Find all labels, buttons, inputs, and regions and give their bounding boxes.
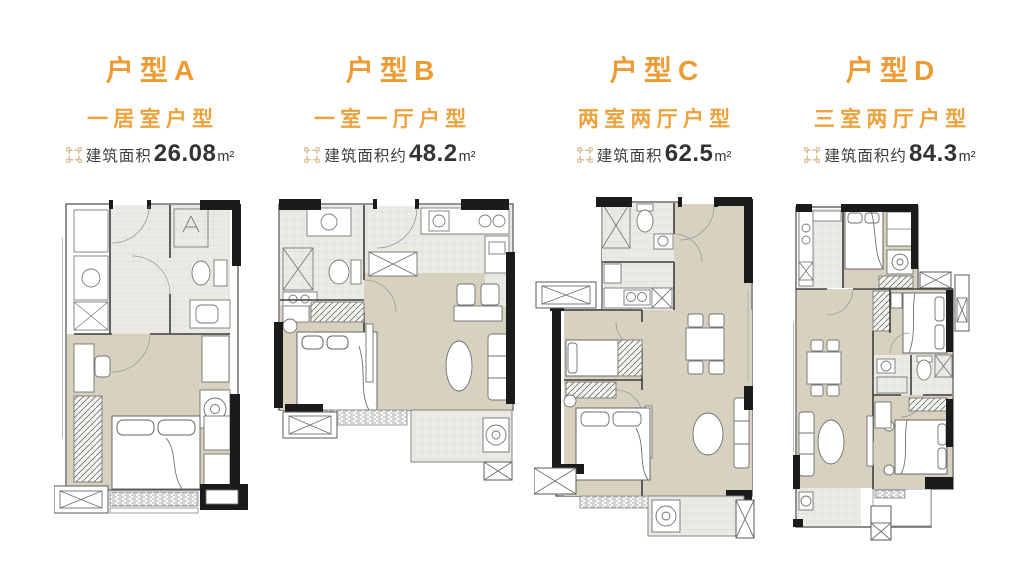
unit-a-title: 户型A (30, 56, 270, 87)
unit-c-type-label: 两室两厅户型 (522, 108, 786, 131)
area-label: 建筑面积 (86, 144, 152, 166)
kitchen-fixtures (74, 210, 108, 330)
elevator-shaft (534, 468, 576, 494)
floorplan-sheet: { "colors": { "accent_orange": "#ED9B33"… (0, 0, 1024, 569)
unit-b-title: 户型B (262, 56, 518, 87)
elevator-shaft (283, 412, 337, 438)
area-value: 48.2 (409, 140, 458, 168)
bedroom2 (845, 211, 913, 274)
floorplan-d-drawing (783, 202, 1005, 554)
closet-hatch (74, 396, 102, 482)
unit-d-title: 户型D (764, 56, 1016, 87)
unit-c-area-row: 建筑面积62.5m² (522, 140, 786, 168)
unit-c-title: 户型C (522, 56, 786, 87)
area-unit: m² (217, 149, 234, 165)
shaft-box (484, 462, 512, 480)
floorplan-c-drawing (534, 194, 770, 542)
unit-d-type-label: 三室两厅户型 (764, 108, 1016, 131)
unit-d-area-row: 建筑面积约84.3m² (764, 140, 1016, 168)
bedroom1 (566, 340, 642, 376)
area-unit: m² (959, 149, 976, 165)
bed (112, 416, 200, 489)
balcony-band (110, 492, 198, 506)
closet-hatch (311, 302, 364, 322)
area-frame-icon (577, 147, 593, 163)
balcony-band (327, 410, 407, 425)
area-value: 84.3 (909, 140, 958, 168)
area-frame-icon (804, 147, 820, 163)
shaft-box (871, 506, 891, 540)
area-unit: m² (459, 149, 476, 165)
floorplan-a-drawing (54, 198, 250, 514)
area-frame-icon (66, 147, 82, 163)
balcony-band (580, 496, 648, 508)
area-value: 62.5 (665, 140, 714, 168)
unit-a-area-row: 建筑面积26.08m² (30, 140, 270, 168)
area-unit: m² (714, 149, 731, 165)
floorplan-b-drawing (271, 196, 521, 486)
area-label: 建筑面积约 (824, 144, 907, 166)
area-label: 建筑面积约 (324, 144, 407, 166)
unit-a-type-label: 一居室户型 (30, 108, 270, 131)
unit-b-type-label: 一室一厅户型 (262, 108, 518, 131)
area-frame-icon (304, 147, 320, 163)
elevator-shaft (54, 486, 108, 513)
area-value: 26.08 (154, 140, 217, 168)
shaft-box (736, 500, 754, 538)
stair-shaft (536, 282, 596, 308)
area-label: 建筑面积 (597, 144, 663, 166)
unit-b-area-row: 建筑面积约48.2m² (262, 140, 518, 168)
